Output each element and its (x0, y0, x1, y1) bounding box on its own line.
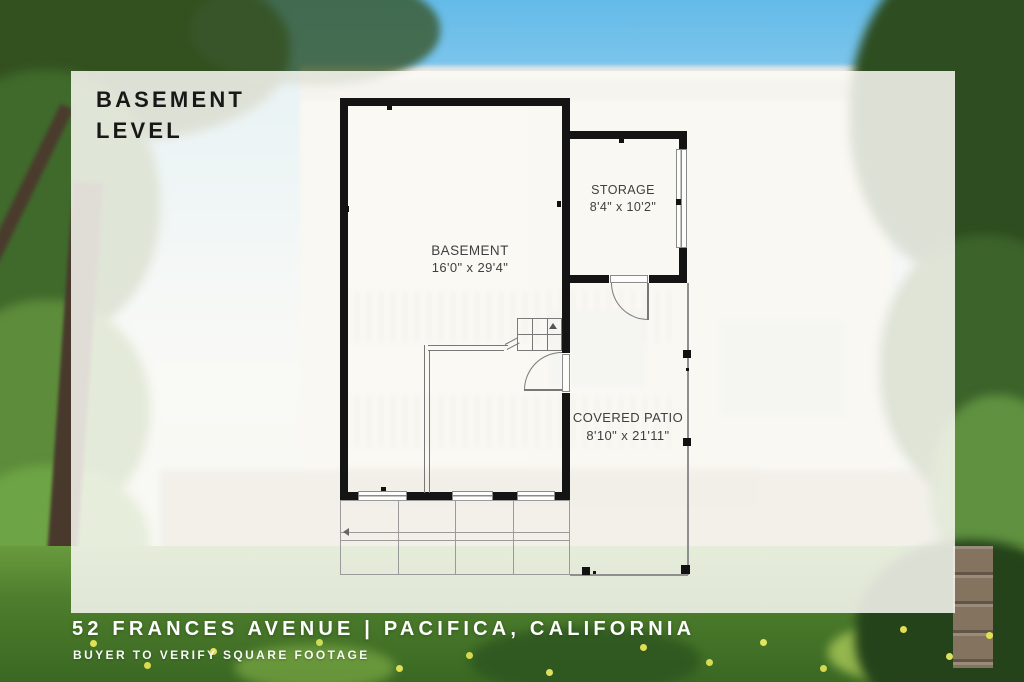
wall-tick (381, 487, 386, 491)
patio-post (681, 565, 690, 574)
window-tick (676, 199, 681, 205)
real-estate-floorplan-flyer: BASEMENT LEVEL (0, 0, 1024, 682)
stair-mid-line (518, 334, 561, 335)
deck-arrow-icon (343, 528, 349, 536)
floor-plan: BASEMENT 16'0" x 29'4" STORAGE 8'4" x 10… (0, 0, 1024, 682)
partition-line (428, 345, 508, 346)
wall-tick (345, 206, 349, 212)
wall-tick (619, 139, 624, 143)
partition-line-vertical (429, 350, 430, 493)
deck-line (341, 540, 569, 541)
patio-room-label: COVERED PATIO (573, 410, 683, 425)
partition-line-vertical (424, 345, 425, 493)
storage-room-label: STORAGE (591, 183, 655, 197)
basement-room-dimensions: 16'0" x 29'4" (432, 260, 509, 275)
deck-line (455, 501, 456, 574)
storage-door-swing-arc (611, 283, 648, 320)
partition-line (428, 350, 504, 351)
deck-line (513, 501, 514, 574)
patio-boundary-right (687, 283, 689, 575)
basement-room-label: BASEMENT (431, 243, 508, 258)
patio-room-dimensions: 8'10" x 21'11" (586, 428, 669, 443)
deck-grid (340, 500, 570, 575)
storage-door-leaf (647, 283, 649, 320)
staircase (517, 318, 562, 351)
storage-door-panel (610, 275, 648, 283)
patio-post (683, 438, 691, 446)
storage-room-dimensions: 8'4" x 10'2" (590, 200, 656, 214)
deck-line (398, 501, 399, 574)
disclaimer-text: BUYER TO VERIFY SQUARE FOOTAGE (73, 648, 370, 662)
wall-tick (387, 106, 392, 110)
patio-post (683, 350, 691, 358)
patio-post-small (686, 368, 689, 371)
basement-door-panel (562, 354, 570, 392)
property-address: 52 FRANCES AVENUE | PACIFICA, CALIFORNIA (72, 618, 695, 641)
basement-walls (340, 98, 570, 500)
stairs-up-arrow-icon (549, 323, 557, 329)
patio-post-small (593, 571, 596, 574)
basement-door-leaf (524, 389, 562, 391)
patio-post (582, 567, 590, 575)
deck-line (341, 532, 569, 533)
wall-tick (557, 201, 561, 207)
